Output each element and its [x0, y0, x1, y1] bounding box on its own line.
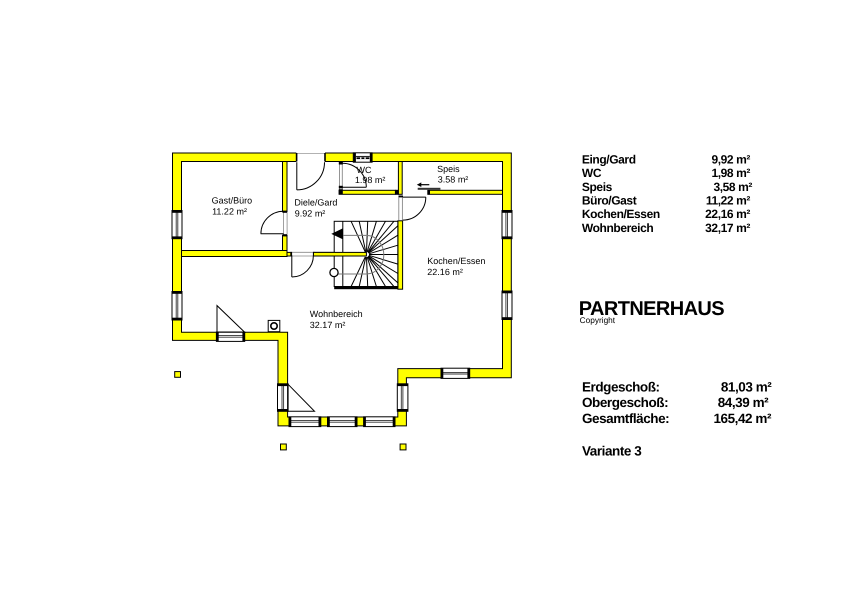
svg-text:Speis: Speis [437, 164, 460, 174]
svg-text:32.17 m²: 32.17 m² [310, 320, 346, 330]
svg-text:3.58 m²: 3.58 m² [438, 174, 469, 184]
svg-text:Kochen/Essen: Kochen/Essen [427, 256, 485, 266]
svg-text:81,03 m²: 81,03 m² [721, 380, 772, 395]
svg-text:WC: WC [582, 166, 602, 180]
svg-text:Obergeschoß:: Obergeschoß: [582, 395, 668, 410]
svg-text:Büro/Gast: Büro/Gast [582, 194, 637, 208]
svg-text:Kochen/Essen: Kochen/Essen [582, 207, 660, 221]
svg-text:Copyright: Copyright [580, 315, 616, 325]
svg-text:Variante 3: Variante 3 [582, 443, 642, 458]
svg-text:11,22 m²: 11,22 m² [706, 194, 751, 208]
svg-text:Erdgeschoß:: Erdgeschoß: [582, 380, 660, 395]
svg-text:Gast/Büro: Gast/Büro [212, 196, 253, 206]
svg-text:Speis: Speis [582, 180, 613, 194]
svg-text:165,42 m²: 165,42 m² [714, 411, 772, 426]
svg-text:84,39 m²: 84,39 m² [718, 395, 769, 410]
svg-text:22,16 m²: 22,16 m² [705, 207, 750, 221]
svg-text:22.16 m²: 22.16 m² [427, 267, 463, 277]
svg-text:9,92 m²: 9,92 m² [711, 152, 750, 166]
svg-text:1.98 m²: 1.98 m² [355, 175, 386, 185]
svg-text:Eing/Gard: Eing/Gard [582, 152, 636, 166]
svg-text:Wohnbereich: Wohnbereich [582, 221, 653, 235]
svg-text:3,58 m²: 3,58 m² [713, 180, 752, 194]
svg-text:11.22 m²: 11.22 m² [212, 207, 247, 217]
svg-text:9.92 m²: 9.92 m² [295, 208, 326, 218]
svg-text:Gesamtfläche:: Gesamtfläche: [582, 411, 669, 426]
svg-text:Wohnbereich: Wohnbereich [310, 309, 363, 319]
svg-text:Diele/Gard: Diele/Gard [294, 197, 337, 207]
svg-text:32,17 m²: 32,17 m² [705, 221, 750, 235]
svg-text:1,98 m²: 1,98 m² [711, 166, 750, 180]
svg-text:WC: WC [357, 165, 372, 175]
